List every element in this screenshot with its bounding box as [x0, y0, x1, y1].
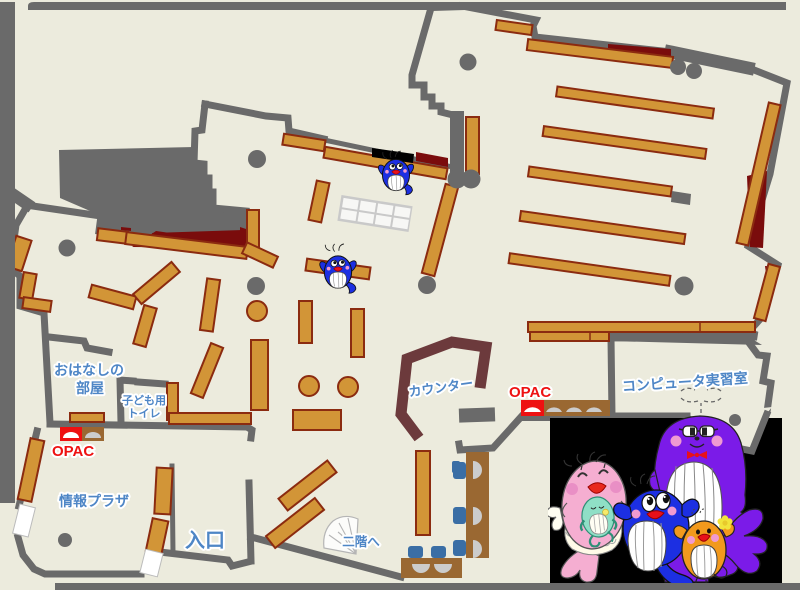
- svg-text:OPAC: OPAC: [52, 443, 94, 460]
- svg-text:おはなしの: おはなしの: [54, 362, 124, 378]
- svg-text:トイレ: トイレ: [128, 407, 161, 420]
- svg-text:情報プラザ: 情報プラザ: [59, 493, 129, 509]
- svg-text:入口: 入口: [185, 529, 225, 552]
- svg-text:子ども用: 子ども用: [122, 394, 166, 407]
- svg-text:OPAC: OPAC: [509, 384, 551, 401]
- svg-text:二階へ: 二階へ: [342, 534, 380, 549]
- svg-text:部屋: 部屋: [76, 380, 104, 396]
